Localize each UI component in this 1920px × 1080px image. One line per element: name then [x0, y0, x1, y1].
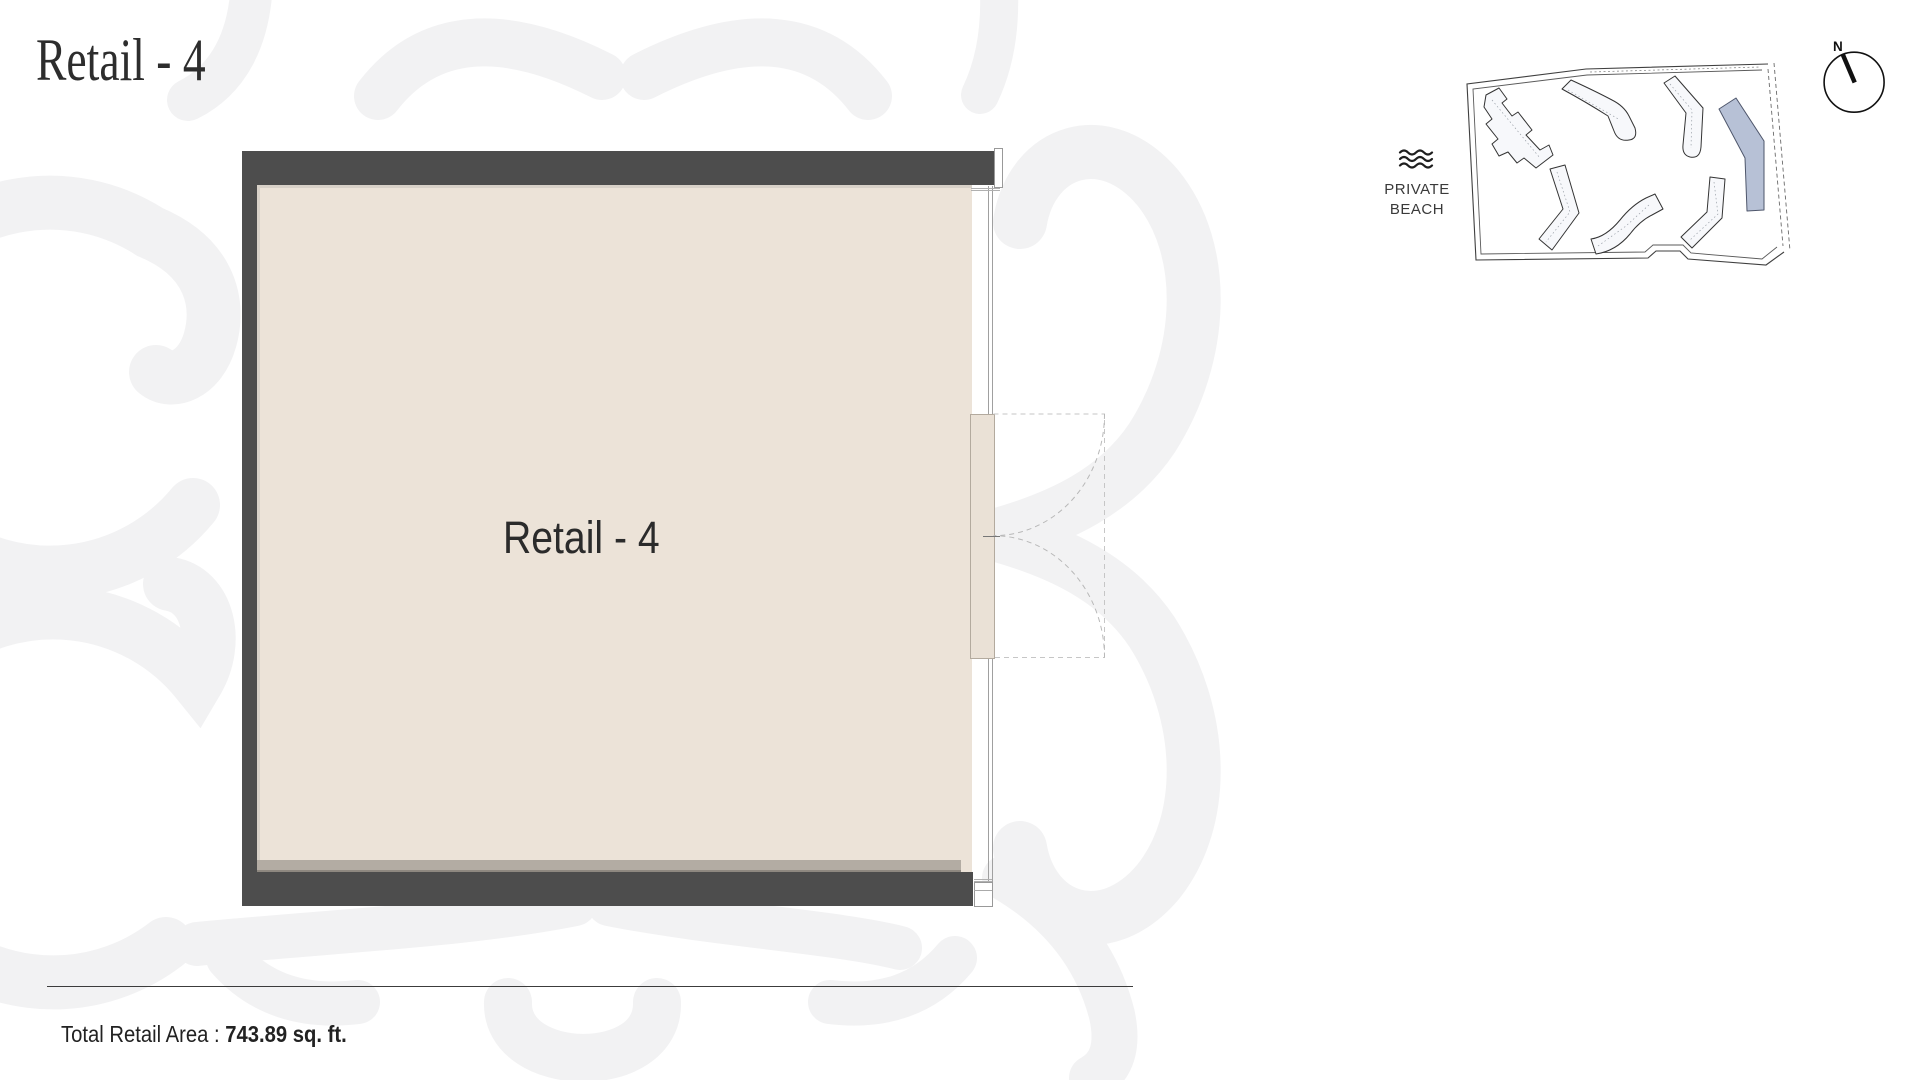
svg-text:N: N — [1833, 39, 1843, 54]
